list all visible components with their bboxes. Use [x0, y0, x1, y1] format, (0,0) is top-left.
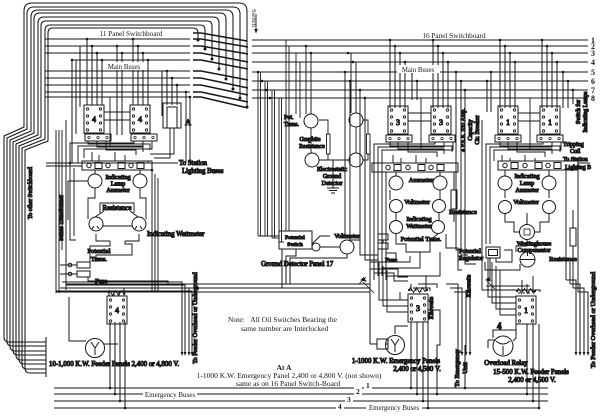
svg-text:2,400 or 4,500 V.: 2,400 or 4,500 V.	[508, 377, 556, 384]
svg-text:Voltmeter: Voltmeter	[513, 199, 539, 206]
svg-text:Trans.: Trans.	[91, 256, 108, 263]
svg-text:Pot.: Pot.	[284, 115, 294, 121]
svg-text:Coil: Coil	[570, 149, 581, 155]
svg-text:Note: All Oil Switches Beari: Note: All Oil Switches Bearing the	[228, 315, 338, 324]
svg-text:To Station: To Station	[563, 157, 588, 163]
svg-text:Emergency Buses: Emergency Buses	[145, 391, 195, 399]
svg-text:Voltmeter: Voltmeter	[404, 199, 430, 206]
svg-text:1: 1	[366, 381, 370, 390]
svg-text:3: 3	[591, 49, 595, 58]
svg-text:Regulator: Regulator	[459, 255, 483, 262]
svg-text:same as on 16 Panel Switch-Boa: same as on 16 Panel Switch-Board	[236, 379, 341, 388]
svg-text:Potential: Potential	[87, 248, 110, 255]
svg-text:Switch for: Switch for	[575, 100, 582, 124]
svg-text:Lighting Buses: Lighting Buses	[182, 168, 224, 175]
svg-text:Series Transformer: Series Transformer	[58, 195, 65, 241]
svg-text:Tripping: Tripping	[563, 142, 584, 148]
svg-text:3: 3	[416, 304, 420, 313]
svg-text:1: 1	[524, 306, 528, 315]
svg-text:1: 1	[548, 118, 552, 127]
svg-text:3: 3	[439, 118, 443, 127]
svg-text:4: 4	[115, 306, 119, 315]
svg-text:Wattmeter: Wattmeter	[406, 223, 432, 230]
svg-text:Overload Relay: Overload Relay	[484, 360, 528, 367]
svg-text:To Station: To Station	[179, 160, 208, 167]
svg-text:Lamp: Lamp	[520, 180, 534, 187]
svg-text:4 P.S.E. 330 Amp.: 4 P.S.E. 330 Amp.	[461, 108, 467, 152]
svg-text:To Emergency: To Emergency	[454, 348, 461, 387]
svg-text:2: 2	[356, 387, 360, 396]
svg-text:To Feeder Overhead or Undergro: To Feeder Overhead or Underground	[590, 271, 597, 368]
svg-text:Indicating Wattmeter: Indicating Wattmeter	[147, 231, 205, 238]
svg-text:15-500 K.W. Feeder Panels: 15-500 K.W. Feeder Panels	[493, 369, 569, 376]
svg-text:3: 3	[347, 395, 351, 404]
svg-text:4: 4	[591, 58, 595, 67]
svg-text:Detector: Detector	[322, 181, 343, 187]
svg-text:Resistance: Resistance	[102, 205, 131, 212]
svg-text:Ammeter: Ammeter	[409, 177, 434, 184]
svg-text:8: 8	[591, 94, 595, 103]
svg-text:Cir. Breaker: Cir. Breaker	[475, 115, 481, 144]
svg-text:Potential: Potential	[285, 235, 305, 241]
svg-text:Ammeter: Ammeter	[515, 187, 538, 194]
svg-text:To other Switchboard: To other Switchboard	[28, 167, 34, 219]
svg-text:4: 4	[138, 115, 142, 124]
svg-text:Indicating: Indicating	[406, 216, 431, 223]
svg-text:Trans.: Trans.	[284, 122, 299, 128]
svg-text:11 Panel Switchboard: 11 Panel Switchboard	[100, 30, 163, 38]
svg-text:Resistance: Resistance	[299, 144, 325, 150]
svg-text:Ground Detector Panel 17: Ground Detector Panel 17	[261, 261, 334, 268]
svg-text:2,400 or 4,500 V.: 2,400 or 4,500 V.	[393, 366, 441, 373]
svg-text:Switch: Switch	[287, 242, 303, 248]
svg-text:5: 5	[591, 68, 595, 77]
svg-text:Kilowatts: Kilowatts	[429, 296, 435, 319]
svg-text:6: 6	[591, 77, 595, 86]
svg-text:same number are Interlocked: same number are Interlocked	[241, 324, 328, 333]
svg-text:10-1,000 K.W. Feeder Panels 2,: 10-1,000 K.W. Feeder Panels 2,400 or 4,8…	[49, 361, 179, 368]
svg-text:Ammeter: Ammeter	[106, 187, 129, 194]
svg-text:Compensator: Compensator	[518, 247, 551, 254]
svg-text:Graphite: Graphite	[300, 137, 321, 143]
svg-text:To Feeder Overhead or Undergro: To Feeder Overhead or Underground	[192, 271, 199, 363]
svg-text:Indicating Lamps: Indicating Lamps	[583, 91, 589, 132]
svg-text:4: 4	[92, 115, 96, 124]
svg-text:Capacity: Capacity	[468, 119, 474, 140]
svg-text:Potential: Potential	[459, 248, 481, 255]
svg-text:Ground: Ground	[323, 174, 341, 180]
svg-text:16 Panel Switchboard: 16 Panel Switchboard	[422, 32, 485, 40]
svg-text:Electrostatic: Electrostatic	[317, 167, 347, 173]
svg-text:4: 4	[338, 402, 342, 411]
svg-text:3: 3	[396, 118, 400, 127]
svg-text:1: 1	[506, 118, 510, 127]
svg-text:Potential Trans.: Potential Trans.	[401, 236, 442, 243]
svg-text:Fuse: Fuse	[385, 257, 397, 264]
svg-text:Main Buses: Main Buses	[402, 67, 435, 74]
svg-text:1-1000 K.W. Emergency Panels: 1-1000 K.W. Emergency Panels	[352, 358, 441, 365]
svg-text:Voltmeter: Voltmeter	[334, 233, 360, 240]
svg-text:Resistance: Resistance	[449, 209, 477, 216]
svg-text:Emergency Buses: Emergency Buses	[369, 404, 419, 412]
svg-text:Main Buses: Main Buses	[108, 64, 141, 71]
svg-text:Indicating: Indicating	[514, 173, 539, 180]
